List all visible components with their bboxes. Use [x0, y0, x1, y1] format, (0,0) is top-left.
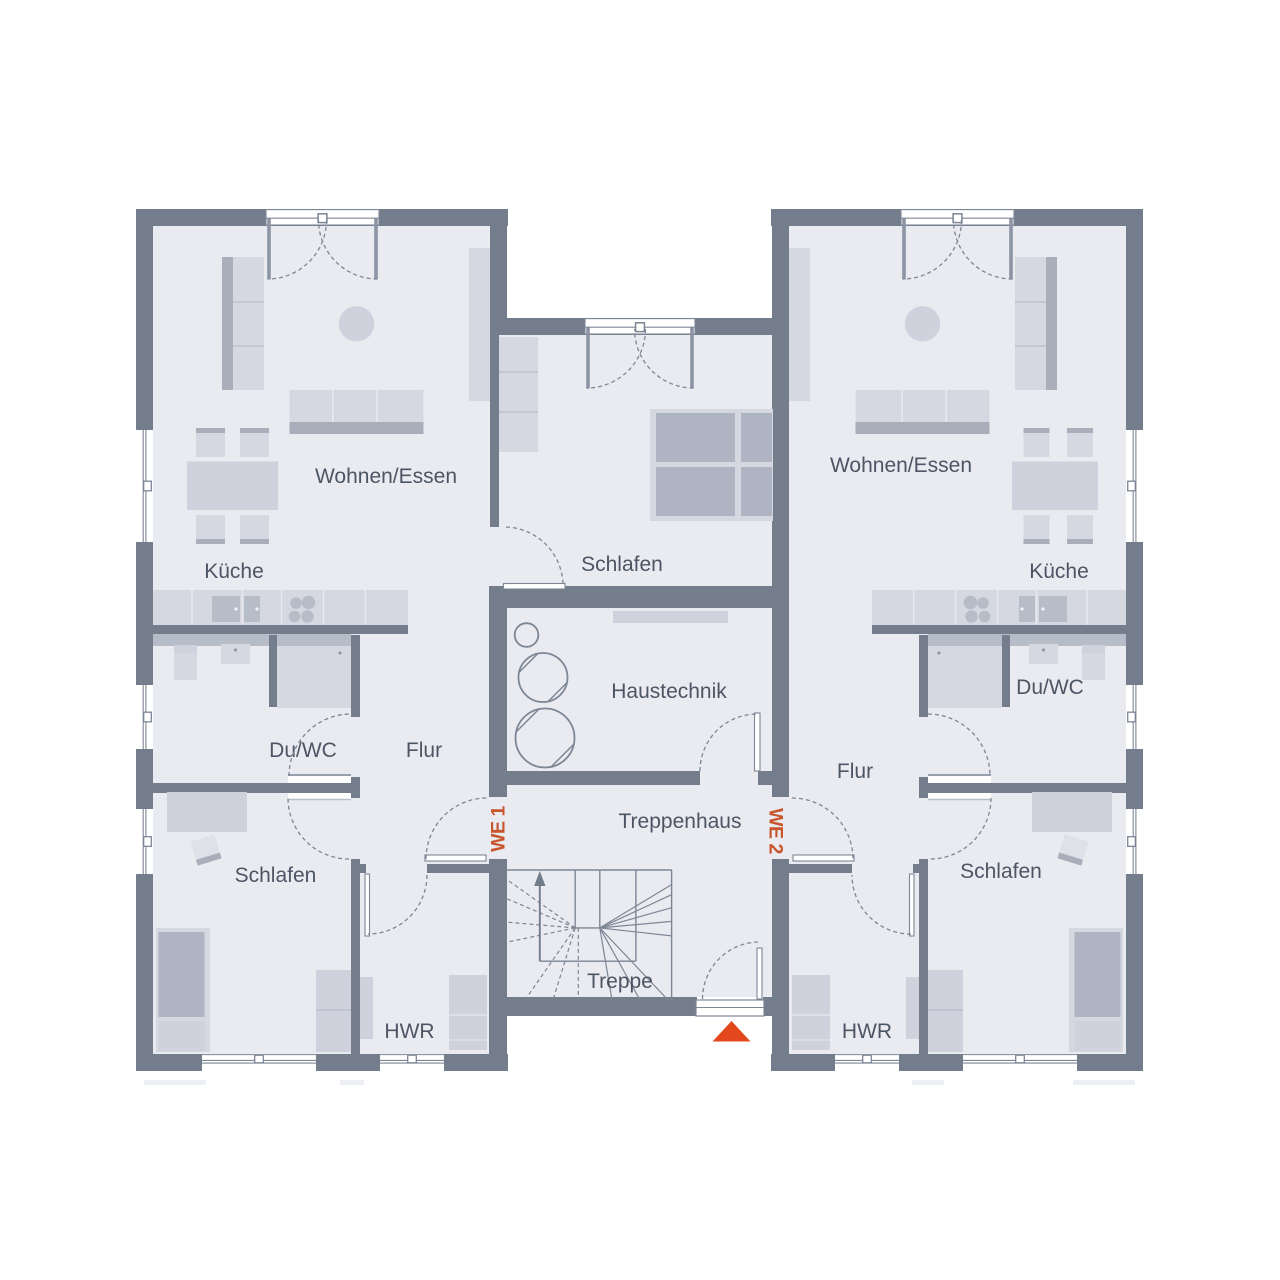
svg-text:WE 2: WE 2: [765, 808, 787, 854]
svg-text:Du/WC: Du/WC: [1016, 676, 1084, 699]
svg-text:Küche: Küche: [204, 560, 264, 583]
svg-text:Wohnen/Essen: Wohnen/Essen: [830, 454, 972, 477]
svg-text:Du/WC: Du/WC: [269, 739, 337, 762]
svg-text:Schlafen: Schlafen: [581, 553, 663, 576]
svg-text:Treppe: Treppe: [587, 970, 653, 993]
svg-text:Küche: Küche: [1029, 560, 1089, 583]
svg-text:Haustechnik: Haustechnik: [611, 680, 727, 703]
svg-text:Wohnen/Essen: Wohnen/Essen: [315, 465, 457, 488]
svg-text:HWR: HWR: [842, 1020, 892, 1043]
svg-text:Schlafen: Schlafen: [960, 860, 1042, 883]
svg-text:HWR: HWR: [384, 1020, 434, 1043]
svg-text:Treppenhaus: Treppenhaus: [619, 810, 742, 833]
svg-text:Flur: Flur: [837, 760, 873, 783]
svg-text:Schlafen: Schlafen: [235, 864, 317, 887]
svg-text:Flur: Flur: [406, 739, 442, 762]
svg-text:WE 1: WE 1: [488, 806, 510, 852]
